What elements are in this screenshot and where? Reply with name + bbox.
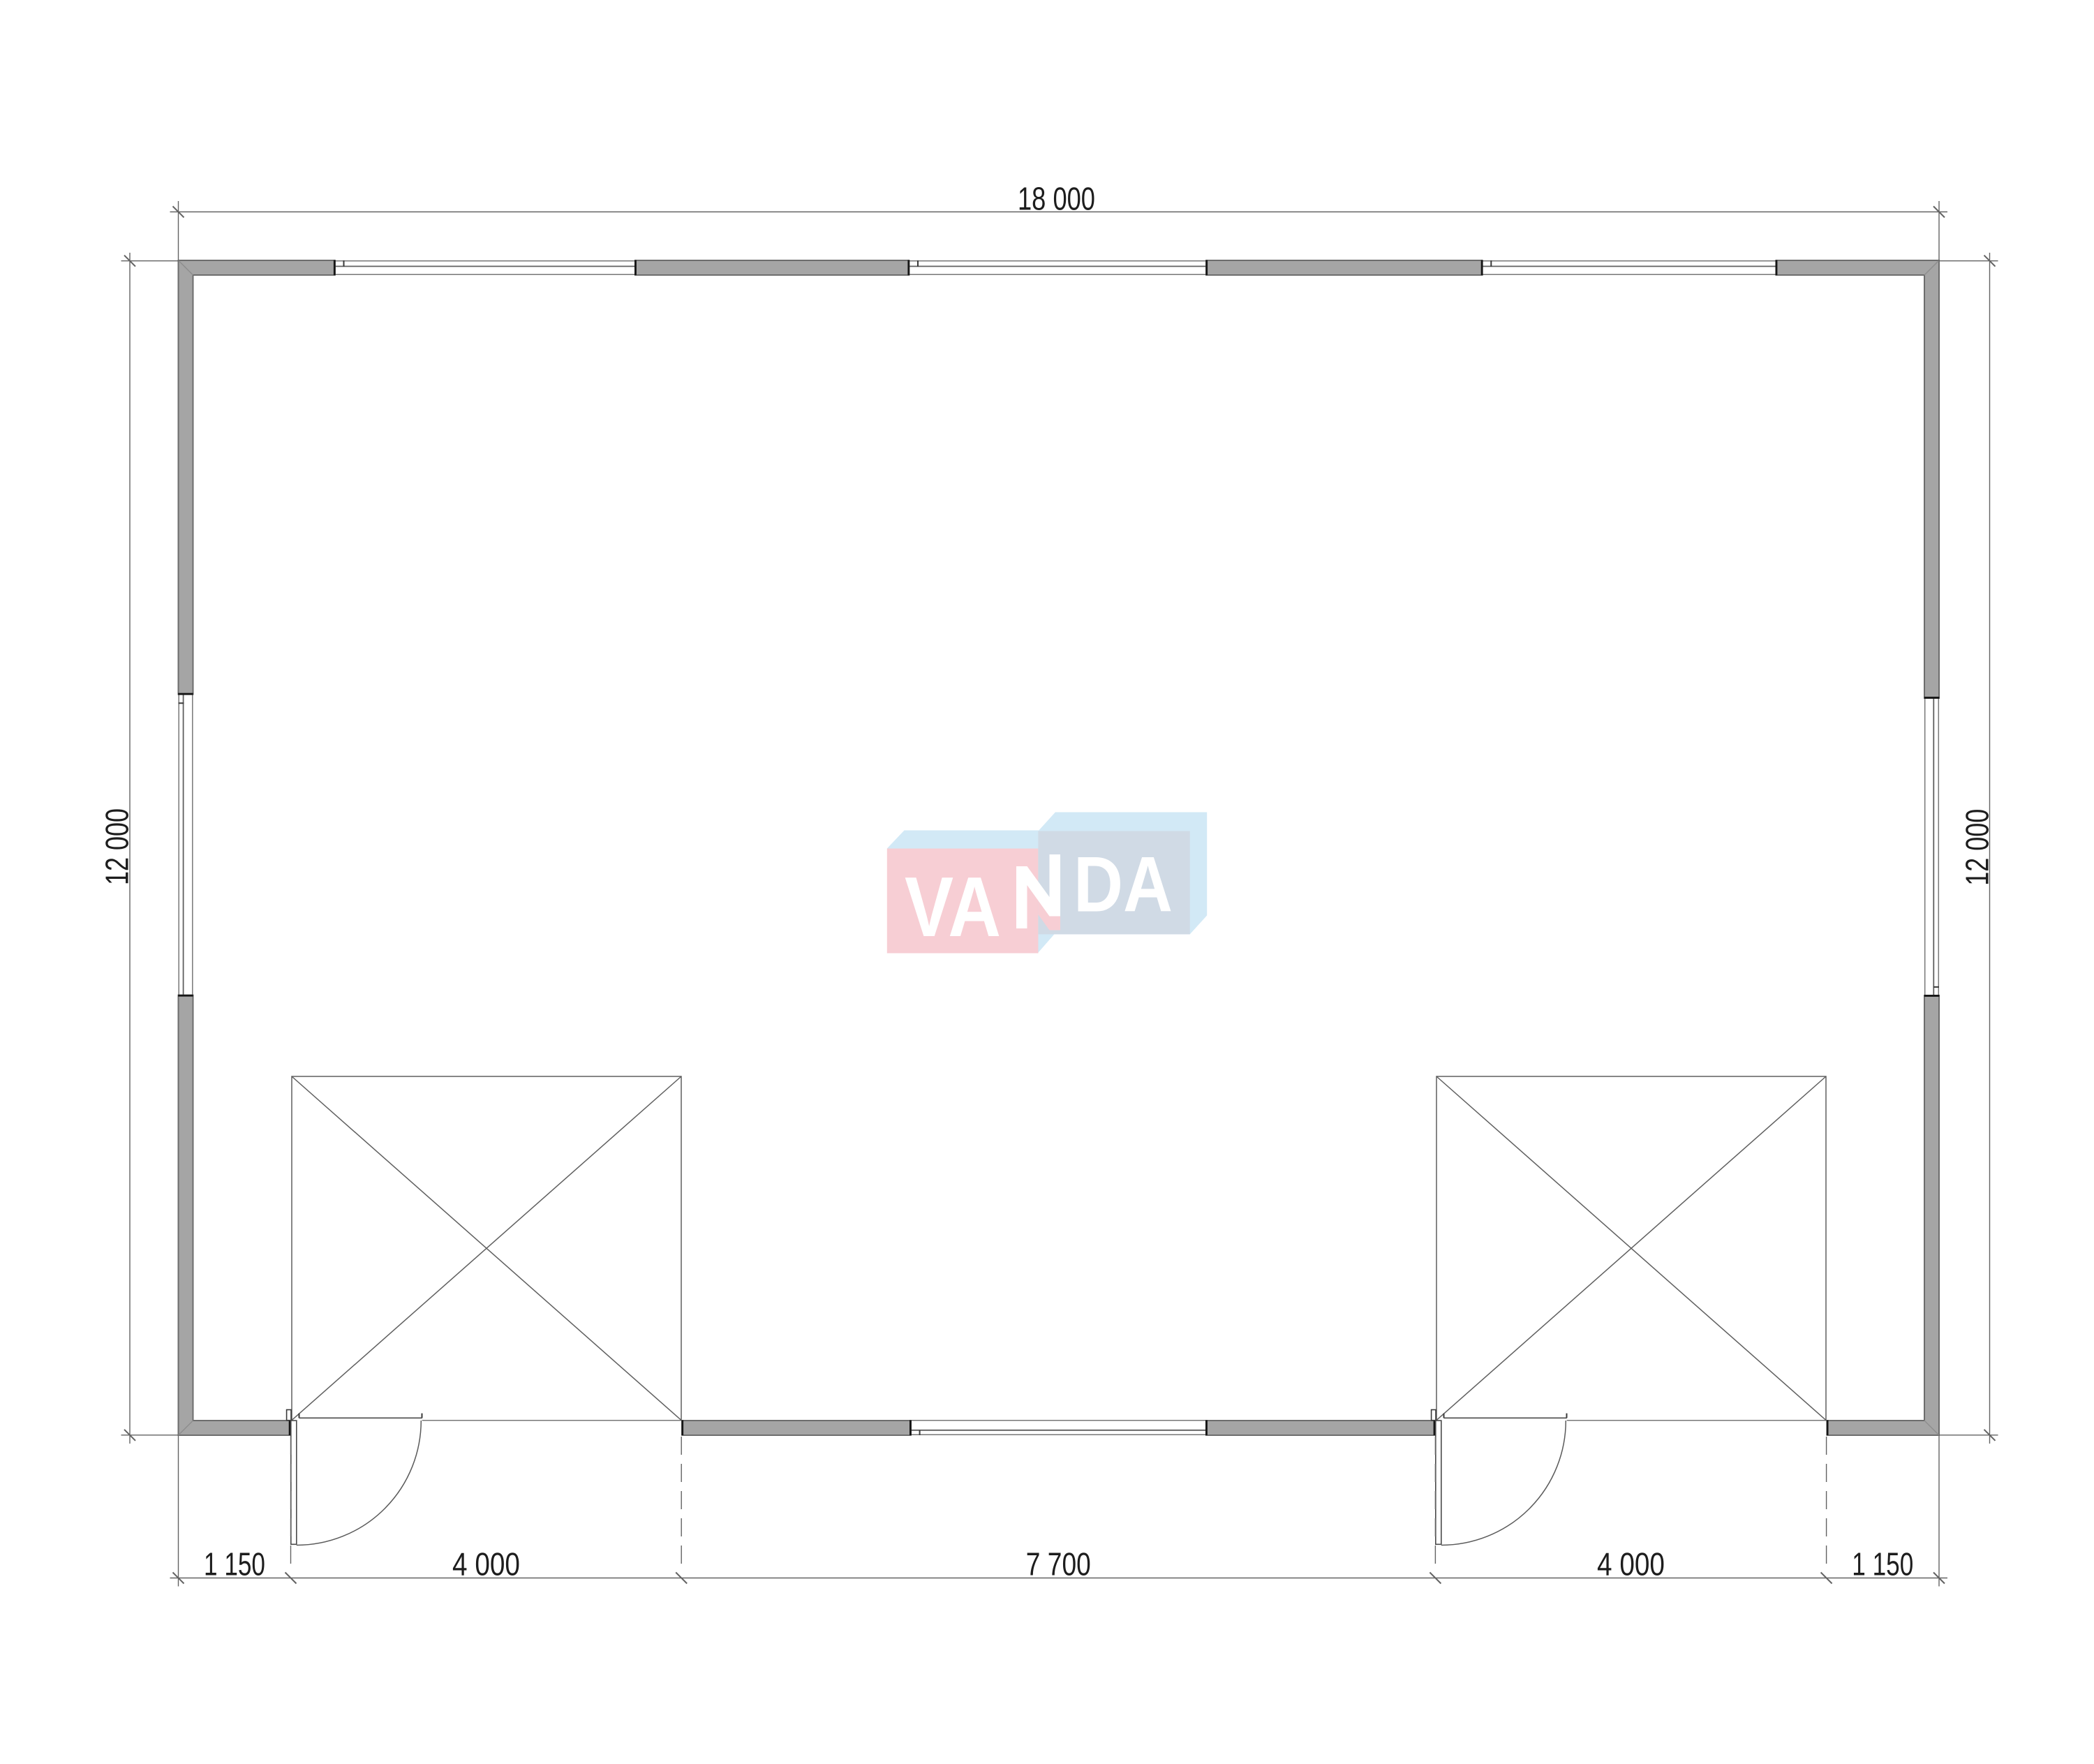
svg-text:VA: VA (905, 859, 1001, 954)
svg-text:1 150: 1 150 (204, 1546, 265, 1583)
svg-text:18 000: 18 000 (1018, 181, 1095, 217)
svg-text:4 000: 4 000 (452, 1546, 520, 1583)
svg-text:7 700: 7 700 (1026, 1546, 1091, 1583)
svg-text:DA: DA (1074, 841, 1173, 928)
svg-text:1 150: 1 150 (1852, 1546, 1913, 1583)
svg-text:4 000: 4 000 (1597, 1546, 1665, 1583)
svg-text:12 000: 12 000 (1959, 809, 1996, 886)
svg-text:12 000: 12 000 (98, 808, 135, 885)
